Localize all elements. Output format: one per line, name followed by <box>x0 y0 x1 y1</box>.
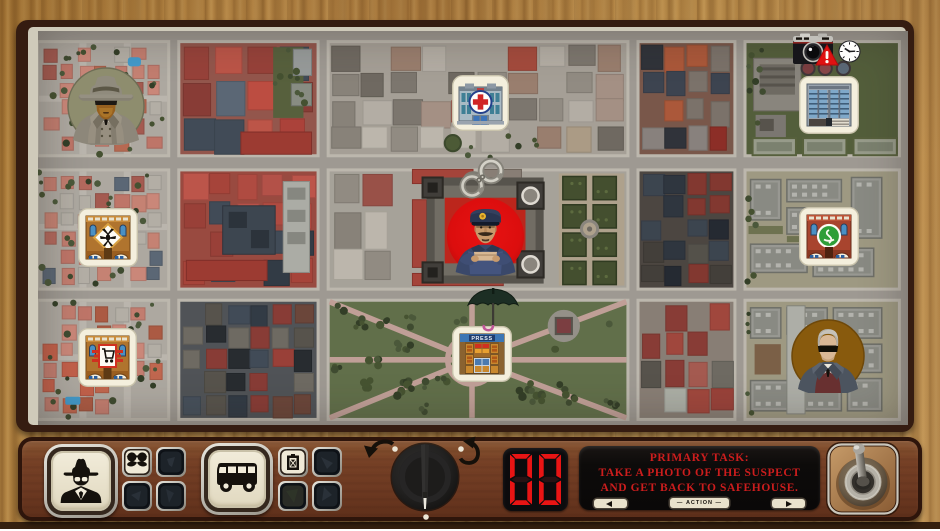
svg-text:PRESS: PRESS <box>471 336 492 342</box>
